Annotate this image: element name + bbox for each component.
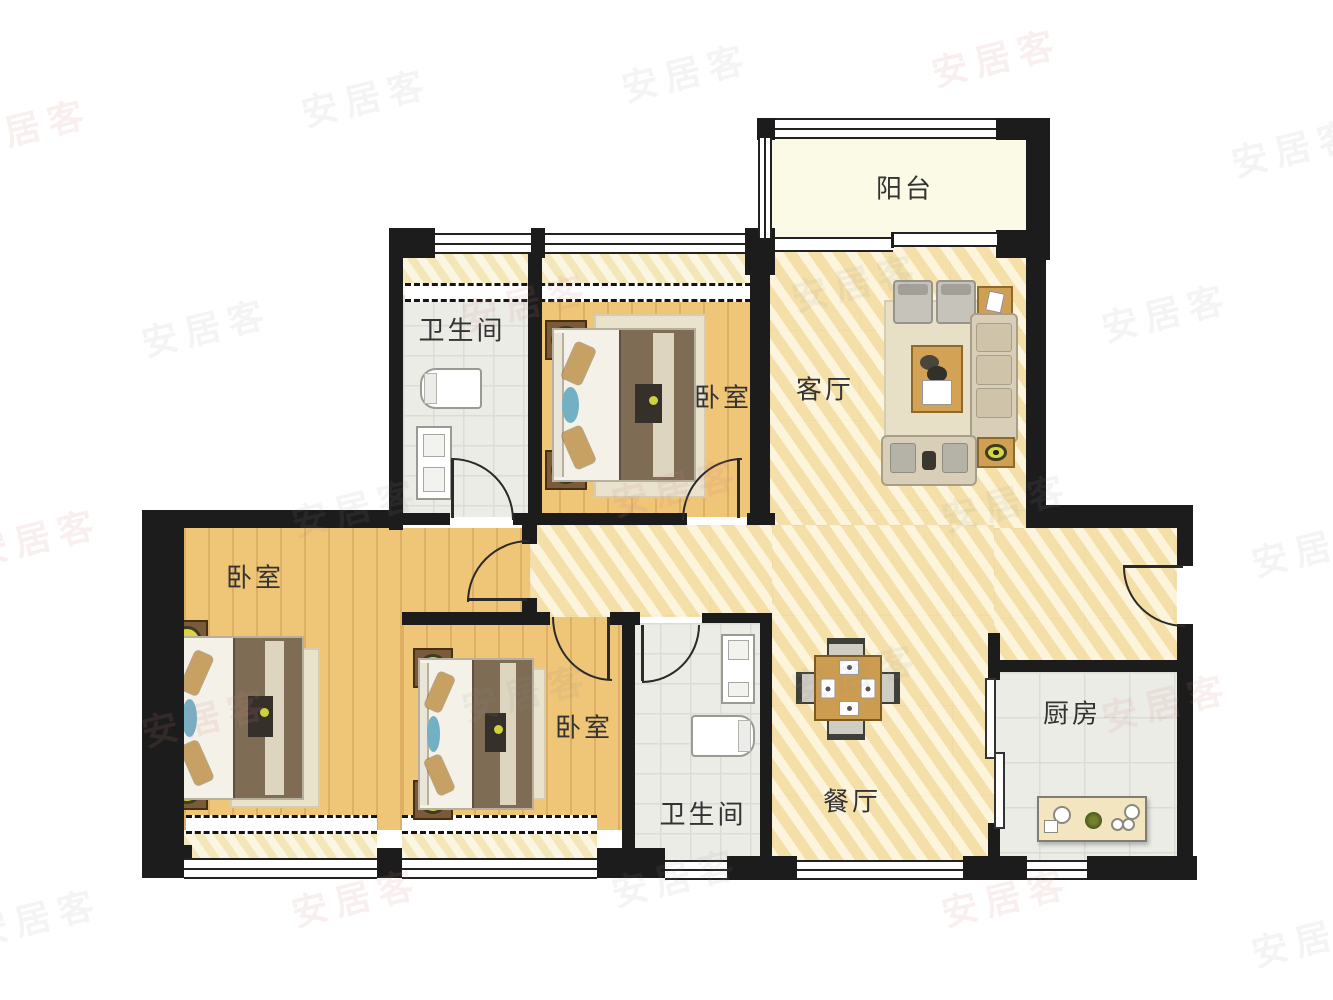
sliding-door-panel [994,752,1005,829]
window [435,233,531,254]
wall [727,856,797,880]
bay-dashed-line-bottom-left [186,815,377,834]
room-label-dining-room: 餐厅 [823,782,881,819]
wall [1026,240,1046,528]
wall [1000,660,1177,672]
watermark: 安居客 [1246,895,1333,977]
wall [757,118,775,140]
room-label-bedroom-left: 卧室 [226,558,284,595]
window [184,858,377,879]
floor-plan: 阳台 卫生间 卧室 客厅 卧室 卧室 卫生间 餐厅 厨房 安居客 安居客 安居客… [0,0,1333,1000]
watermark: 安居客 [616,30,757,112]
room-label-bathroom-top: 卫生间 [418,311,505,348]
window [758,138,772,238]
loveseat-sofa [881,435,977,486]
bay-dashed-line-top [405,283,760,302]
door-leaf [607,617,610,679]
wall [622,613,635,862]
wall [402,612,550,625]
lamp-icon [985,444,1007,461]
stove-burner-icon [1122,818,1135,831]
wall [403,513,450,525]
window [797,860,963,880]
book-icon [985,291,1005,314]
window [545,233,745,254]
window [402,858,597,879]
bedroom-middle-bed [418,658,534,810]
wall [747,513,775,525]
room-label-balcony: 阳台 [876,169,934,206]
wall [996,230,1026,258]
bathroom-vanity [721,634,755,704]
watermark: 安居客 [0,495,106,577]
room-label-bedroom-top: 卧室 [694,378,752,415]
wall [597,848,665,878]
bathroom-vanity [416,426,452,500]
watermark: 安居客 [296,55,437,137]
wall [513,513,687,525]
room-label-bedroom-middle: 卧室 [555,708,613,745]
entry-door-leaf [1123,565,1183,568]
watermark: 安居客 [0,85,96,167]
wall [988,633,1000,680]
side-table [977,437,1015,468]
balcony-sill-jog [891,232,894,248]
wall [377,848,402,878]
room-label-living-room: 客厅 [796,370,854,407]
armchair [893,280,933,324]
watermark: 安居客 [1246,505,1333,587]
door-leaf [451,458,454,518]
wall [1087,856,1197,880]
wall [389,228,403,530]
toilet [420,368,482,409]
wall [1177,624,1193,878]
bedroom-left-bed [172,636,304,800]
watermark: 安居客 [136,285,277,367]
wall [528,240,542,525]
wall [1177,528,1193,566]
kitchen-counter [1037,796,1147,842]
watermark: 安居客 [0,875,106,957]
wall [1030,505,1193,528]
window [775,118,996,139]
door-leaf [641,625,644,681]
room-label-bathroom-bottom: 卫生间 [659,795,746,832]
room-label-kitchen: 厨房 [1043,694,1101,731]
wall [389,228,435,258]
coffee-table [911,345,963,413]
balcony-sill [893,232,997,247]
plant-icon [1085,812,1102,829]
balcony-sill [775,237,893,252]
wall [996,118,1050,140]
sofa [970,313,1018,443]
window [1027,860,1087,880]
bedroom-top-bed [552,328,696,482]
watermark: 安居客 [1096,270,1237,352]
door-leaf [737,458,740,518]
wall [760,613,772,862]
hallway-floor [530,525,775,617]
watermark: 安居客 [926,15,1067,97]
window [665,860,727,880]
wall [750,258,770,525]
dining-table [814,655,882,721]
wall [142,510,184,862]
watermark: 安居客 [1226,105,1333,187]
sliding-door-panel [985,678,996,759]
stove-burner-icon [1124,804,1140,820]
door-leaf [467,598,527,601]
toilet [691,715,755,757]
